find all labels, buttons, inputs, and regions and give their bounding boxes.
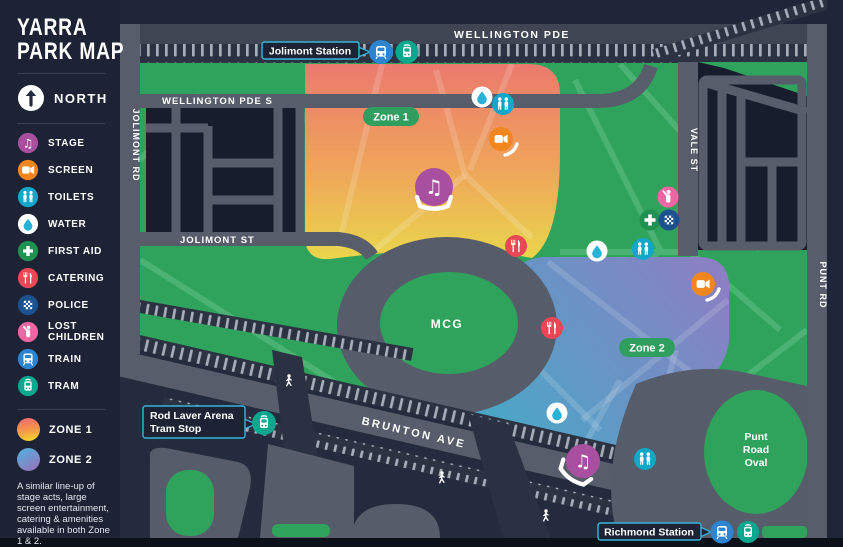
- tram-icon[interactable]: [396, 41, 419, 64]
- toilets-marker: [492, 93, 514, 115]
- legend-zone1: ZONE 1: [17, 418, 112, 441]
- yarra-park-map-page: ♫: [0, 0, 843, 547]
- svg-text:Oval: Oval: [745, 457, 768, 469]
- zone2-pill: Zone 2: [619, 338, 675, 357]
- legend-item-police: POLICE: [17, 294, 112, 316]
- stage-marker: ♫: [415, 168, 453, 209]
- zone2-swatch: [17, 448, 40, 471]
- zone1-pill: Zone 1: [363, 107, 419, 126]
- legend-item-catering: CATERING: [17, 267, 112, 289]
- tram-icon[interactable]: [252, 411, 276, 435]
- park-map: ♫: [0, 0, 843, 547]
- south-green-oval: [166, 470, 214, 536]
- legend-item-tram: TRAM: [17, 375, 112, 397]
- train-icon[interactable]: [369, 40, 393, 64]
- water-icon: [17, 213, 39, 235]
- legend-item-screen: SCREEN: [17, 159, 112, 181]
- punt-road-oval-label: Punt: [744, 431, 768, 443]
- tram-icon[interactable]: [737, 521, 759, 543]
- jolimont-rd-road: [120, 24, 140, 354]
- svg-text:Road: Road: [743, 444, 769, 456]
- svg-text:Zone 1: Zone 1: [373, 112, 408, 124]
- punt-rd-label: PUNT RD: [818, 262, 828, 309]
- top-frame: [120, 0, 843, 24]
- svg-text:Zone 2: Zone 2: [629, 343, 664, 355]
- stage-icon: [17, 132, 39, 154]
- legend-item-water: WATER: [17, 213, 112, 235]
- richmond-station-label: Richmond Station: [604, 527, 694, 539]
- northwest-blocks: [146, 108, 304, 240]
- sidebar: YARRA PARK MAP NORTH STAGE SCREEN TOILET…: [0, 0, 120, 538]
- zones-note: A similar line-up of stage acts, large s…: [17, 481, 115, 547]
- south-green-strip: [272, 524, 330, 537]
- east-frame: [827, 0, 843, 547]
- legend-zone2: ZONE 2: [17, 448, 112, 471]
- lost-children-icon: [17, 321, 39, 343]
- catering-marker: [505, 235, 527, 257]
- screen-icon: [17, 159, 39, 181]
- svg-text:♫: ♫: [425, 175, 443, 199]
- legend-item-first-aid: FIRST AID: [17, 240, 112, 262]
- water-marker: [472, 87, 493, 108]
- jolimont-rd-label: JOLIMONT RD: [131, 109, 141, 182]
- zone1-area: [305, 64, 560, 259]
- first-aid-marker: [640, 210, 661, 231]
- mcg-label: MCG: [431, 317, 464, 331]
- catering-marker: [541, 317, 563, 339]
- north-indicator: NORTH: [17, 82, 112, 114]
- legend-item-lost-children: LOST CHILDREN: [17, 321, 112, 343]
- train-icon: [17, 348, 39, 370]
- northeast-blocks: [698, 62, 807, 250]
- wellington-pde-label: WELLINGTON PDE: [454, 29, 570, 41]
- police-icon: [17, 294, 39, 316]
- catering-icon: [17, 267, 39, 289]
- divider: [17, 123, 105, 124]
- water-marker: [547, 403, 568, 424]
- police-marker: [659, 210, 680, 231]
- north-arrow-icon: [17, 84, 45, 112]
- rod-laver-label: Rod Laver Arena: [150, 410, 234, 422]
- legend-item-stage: STAGE: [17, 132, 112, 154]
- svg-text:♫: ♫: [575, 452, 591, 473]
- toilets-icon: [17, 186, 39, 208]
- legend: STAGE SCREEN TOILETS WATER FIRST AID CAT…: [17, 132, 112, 397]
- divider: [17, 409, 105, 410]
- jolimont-station-label: Jolimont Station: [269, 46, 351, 58]
- legend-item-train: TRAIN: [17, 348, 112, 370]
- toilets-marker: [632, 238, 654, 260]
- legend-item-toilets: TOILETS: [17, 186, 112, 208]
- divider: [17, 73, 105, 74]
- lost-children-marker: [658, 187, 679, 208]
- page-title: YARRA PARK MAP: [17, 16, 93, 64]
- vale-st-label: VALE ST: [689, 128, 699, 172]
- toilets-marker: [634, 448, 656, 470]
- wellington-pde-s-label: WELLINGTON PDE S: [162, 96, 273, 107]
- first-aid-icon: [17, 240, 39, 262]
- jolimont-st-label: JOLIMONT ST: [180, 235, 255, 246]
- tram-icon: [17, 375, 39, 397]
- zone1-swatch: [17, 418, 40, 441]
- train-icon[interactable]: [711, 521, 734, 544]
- svg-text:Tram Stop: Tram Stop: [150, 423, 201, 435]
- water-marker: [587, 241, 608, 262]
